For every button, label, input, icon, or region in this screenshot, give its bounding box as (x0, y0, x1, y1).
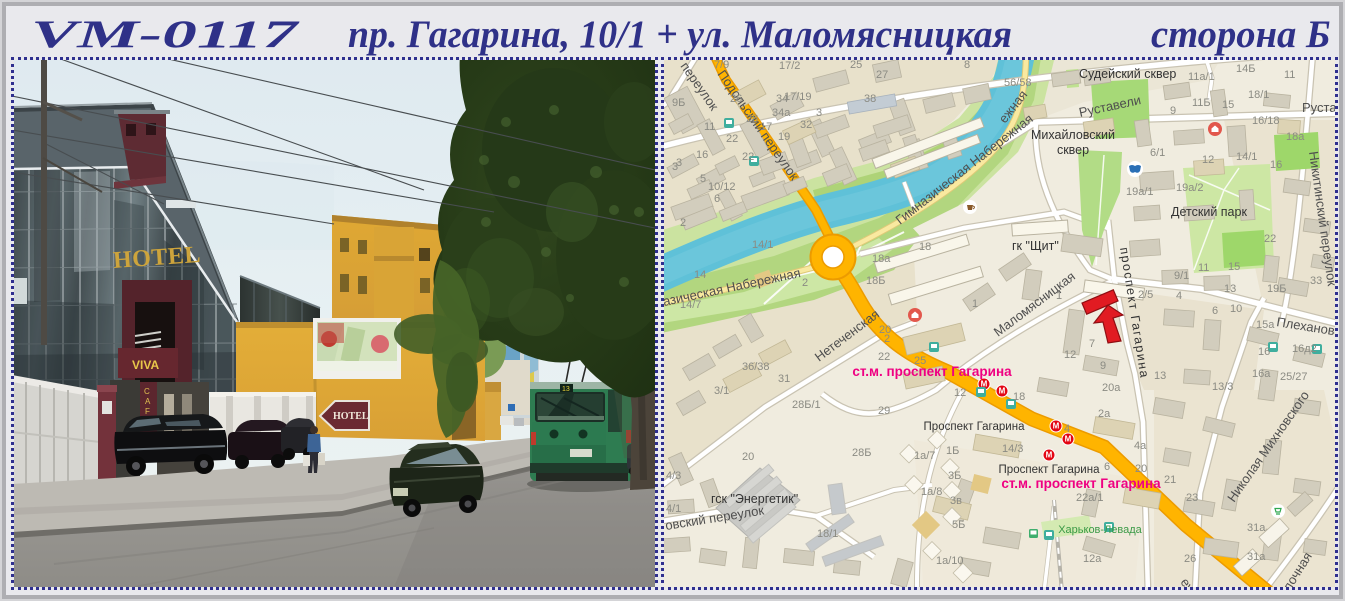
svg-text:11: 11 (1198, 262, 1209, 274)
svg-text:28Б/1: 28Б/1 (792, 399, 821, 411)
svg-text:3: 3 (816, 107, 822, 119)
svg-text:ст.м. проспект Гагарина: ст.м. проспект Гагарина (852, 364, 1012, 379)
svg-text:1: 1 (972, 298, 978, 310)
svg-text:9: 9 (1170, 105, 1176, 117)
svg-text:12: 12 (1202, 154, 1214, 166)
svg-text:3Б: 3Б (948, 470, 961, 482)
svg-text:11: 11 (1284, 69, 1295, 81)
svg-text:VIVA: VIVA (132, 358, 159, 372)
svg-text:32: 32 (800, 119, 812, 131)
svg-text:31: 31 (778, 373, 790, 385)
svg-text:14/3: 14/3 (1002, 443, 1023, 455)
svg-text:М: М (1053, 422, 1060, 431)
svg-text:Детский парк: Детский парк (1171, 205, 1247, 219)
svg-text:21: 21 (1164, 474, 1176, 486)
svg-text:М: М (1065, 435, 1072, 444)
svg-text:F: F (145, 407, 150, 416)
svg-text:13: 13 (1224, 283, 1236, 295)
svg-text:3: 3 (672, 161, 678, 173)
svg-text:4/3: 4/3 (666, 470, 681, 482)
svg-text:6: 6 (1104, 461, 1110, 473)
svg-text:5: 5 (700, 173, 706, 185)
svg-text:М: М (1046, 451, 1053, 460)
svg-text:4/1: 4/1 (666, 503, 681, 515)
svg-text:14Б: 14Б (1236, 63, 1255, 75)
svg-text:11а/1: 11а/1 (1188, 71, 1215, 83)
svg-text:6: 6 (714, 193, 720, 205)
svg-text:3/1: 3/1 (714, 385, 729, 397)
svg-text:15: 15 (1222, 99, 1234, 111)
svg-text:26: 26 (1184, 553, 1196, 565)
svg-text:7/9: 7/9 (714, 60, 729, 71)
svg-text:Проспект Гагарина: Проспект Гагарина (999, 464, 1101, 476)
svg-text:10: 10 (1230, 303, 1242, 315)
svg-text:22: 22 (726, 133, 738, 145)
svg-text:4: 4 (1064, 423, 1070, 435)
svg-text:1а/8: 1а/8 (921, 486, 942, 498)
svg-text:34а: 34а (772, 107, 791, 119)
svg-text:гк "Щит": гк "Щит" (1012, 239, 1059, 253)
svg-text:19а/1: 19а/1 (1126, 186, 1154, 198)
svg-text:22: 22 (1264, 233, 1276, 245)
svg-text:6: 6 (1212, 305, 1218, 317)
svg-text:16: 16 (1258, 346, 1270, 358)
svg-text:16: 16 (1270, 159, 1282, 171)
svg-text:25/27: 25/27 (1280, 371, 1308, 383)
svg-text:25: 25 (850, 60, 862, 71)
svg-text:23: 23 (1186, 492, 1198, 504)
svg-text:ст.м. проспект Гагарина: ст.м. проспект Гагарина (1001, 476, 1161, 491)
svg-text:22: 22 (742, 151, 754, 163)
svg-text:4: 4 (1176, 290, 1182, 302)
svg-text:18Б: 18Б (866, 275, 885, 287)
svg-text:18а: 18а (1286, 131, 1305, 143)
svg-text:13: 13 (562, 386, 570, 393)
svg-text:38: 38 (864, 93, 876, 105)
svg-text:13: 13 (1154, 370, 1166, 382)
svg-text:12а: 12а (1083, 553, 1102, 565)
svg-text:2/5: 2/5 (1138, 289, 1153, 301)
svg-text:20а: 20а (1102, 382, 1121, 394)
svg-text:Михайловский: Михайловский (1031, 128, 1115, 142)
svg-text:20: 20 (1135, 463, 1147, 475)
svg-text:31а: 31а (1247, 522, 1266, 534)
svg-text:1а/7: 1а/7 (914, 450, 935, 462)
svg-text:HOTEL: HOTEL (333, 411, 369, 422)
svg-text:17: 17 (760, 121, 772, 133)
svg-text:14/1: 14/1 (752, 239, 773, 251)
svg-text:25: 25 (914, 355, 926, 367)
svg-text:1: 1 (1056, 290, 1062, 302)
svg-text:18а: 18а (872, 253, 891, 265)
svg-text:20: 20 (742, 451, 754, 463)
svg-text:12: 12 (1064, 349, 1076, 361)
svg-text:36/38: 36/38 (742, 361, 770, 373)
svg-text:16а: 16а (1252, 368, 1271, 380)
svg-text:2а: 2а (1098, 408, 1111, 420)
svg-text:26: 26 (730, 93, 742, 105)
svg-text:10/12: 10/12 (708, 181, 736, 193)
svg-text:12: 12 (954, 387, 966, 399)
svg-text:9: 9 (1100, 360, 1106, 372)
svg-text:Судейский сквер: Судейский сквер (1079, 67, 1176, 81)
svg-text:2: 2 (884, 333, 890, 345)
svg-text:11: 11 (704, 121, 715, 133)
svg-text:5Б: 5Б (952, 519, 965, 531)
svg-text:56/58: 56/58 (1004, 77, 1032, 89)
svg-text:17/2: 17/2 (779, 60, 800, 72)
svg-text:19Б: 19Б (1267, 283, 1286, 295)
svg-text:29: 29 (878, 405, 890, 417)
svg-text:16: 16 (696, 149, 708, 161)
svg-text:1а/10: 1а/10 (936, 555, 964, 567)
svg-text:14: 14 (694, 269, 706, 281)
svg-text:Проспект Гагарина: Проспект Гагарина (924, 421, 1026, 433)
svg-text:18/1: 18/1 (1248, 89, 1269, 101)
svg-text:16д2: 16д2 (1292, 343, 1317, 355)
svg-text:34: 34 (776, 93, 788, 105)
svg-text:8: 8 (964, 60, 970, 71)
svg-text:16/18: 16/18 (1252, 115, 1280, 127)
svg-text:18/1: 18/1 (817, 528, 838, 540)
svg-text:9Б: 9Б (672, 97, 685, 109)
svg-text:28Б: 28Б (852, 447, 871, 459)
svg-text:3в: 3в (950, 495, 962, 507)
svg-text:15а: 15а (1256, 319, 1275, 331)
svg-text:31а: 31а (1247, 551, 1266, 563)
svg-text:22а/1: 22а/1 (1076, 492, 1104, 504)
svg-text:C: C (144, 387, 150, 396)
svg-text:33: 33 (1310, 275, 1322, 287)
svg-text:4а: 4а (1134, 440, 1147, 452)
svg-text:1Б: 1Б (946, 445, 959, 457)
svg-text:18: 18 (919, 241, 931, 253)
svg-text:13/3: 13/3 (1212, 381, 1233, 393)
svg-text:Рустав: Рустав (1302, 100, 1335, 115)
svg-text:14/7: 14/7 (680, 299, 701, 311)
svg-text:2: 2 (680, 217, 686, 229)
svg-text:28: 28 (746, 113, 758, 125)
svg-text:М: М (999, 387, 1006, 396)
svg-text:22: 22 (878, 351, 890, 363)
svg-text:19а/2: 19а/2 (1176, 182, 1204, 194)
svg-text:11Б: 11Б (1192, 97, 1211, 109)
svg-text:Харьков-Левада: Харьков-Левада (1058, 524, 1142, 536)
svg-text:9/1: 9/1 (1174, 270, 1189, 282)
svg-text:сквер: сквер (1057, 143, 1089, 157)
svg-text:A: A (145, 397, 151, 406)
svg-text:15: 15 (1228, 261, 1240, 273)
svg-text:19: 19 (778, 131, 790, 143)
svg-text:27: 27 (876, 69, 888, 81)
svg-text:14/1: 14/1 (1236, 151, 1257, 163)
svg-text:18: 18 (1013, 391, 1025, 403)
svg-text:6/1: 6/1 (1150, 147, 1165, 159)
svg-text:2: 2 (802, 277, 808, 289)
svg-text:7: 7 (1089, 338, 1095, 350)
svg-text:гск "Энергетик": гск "Энергетик" (711, 492, 798, 506)
